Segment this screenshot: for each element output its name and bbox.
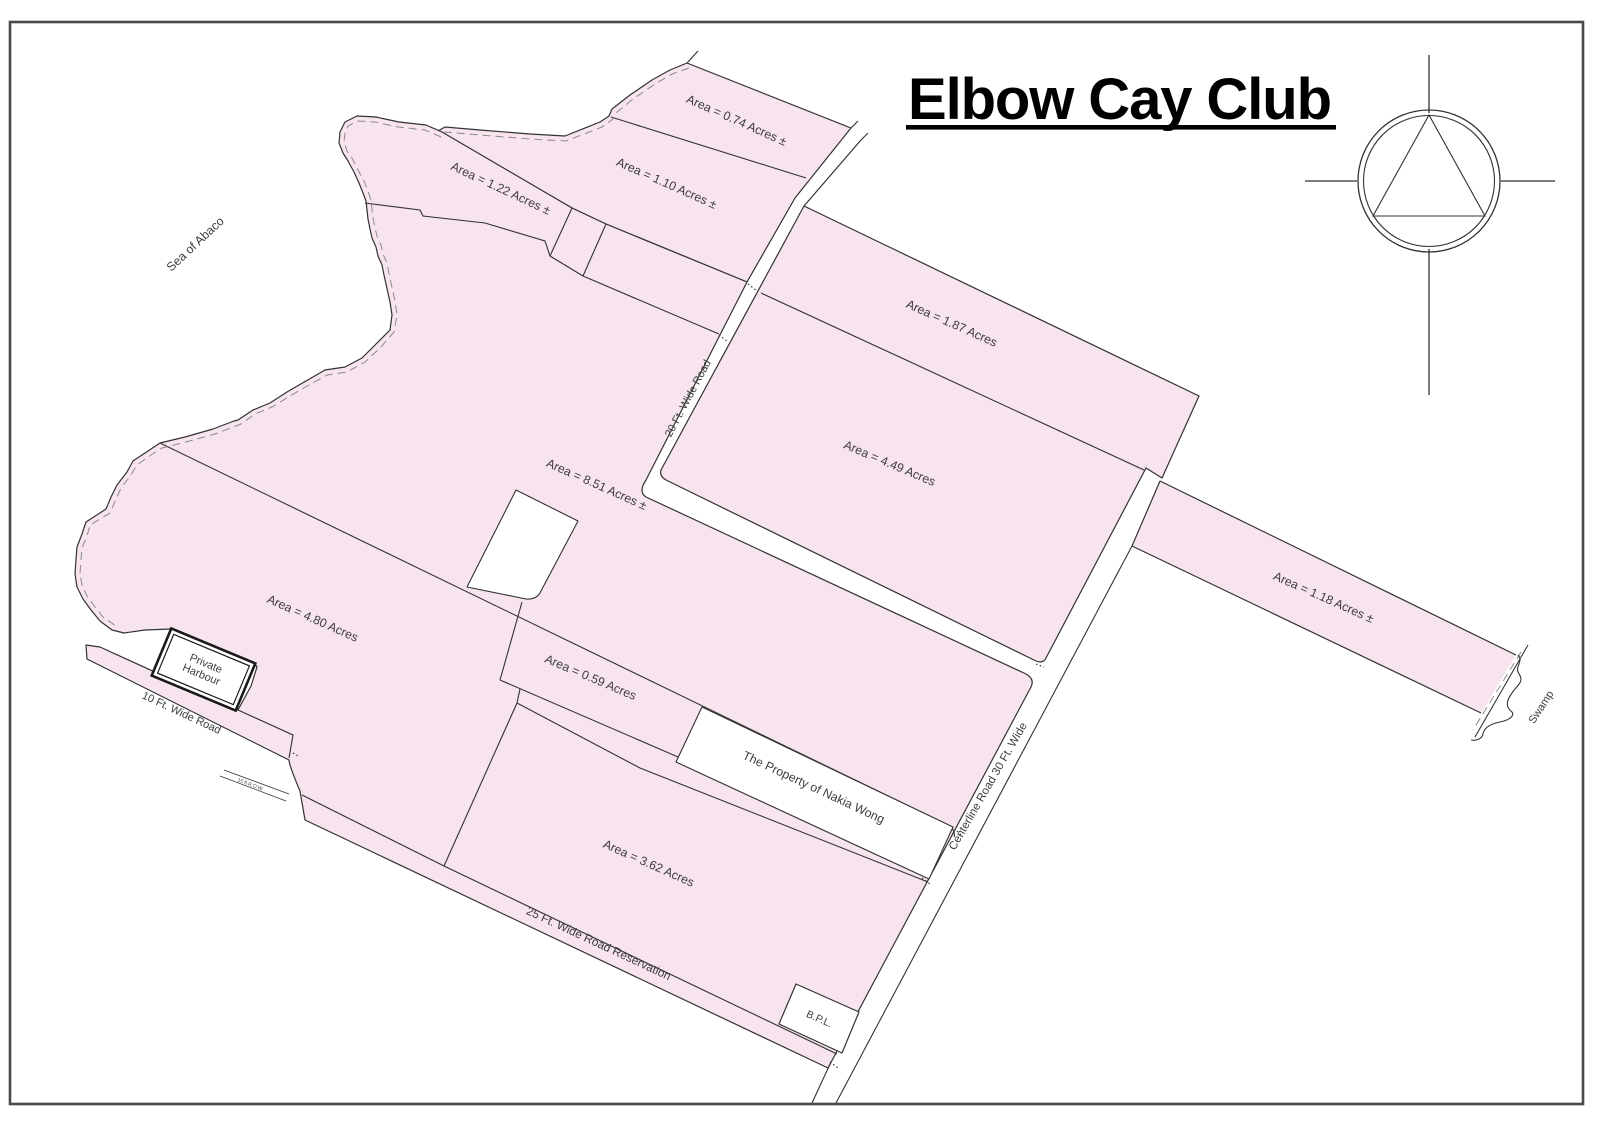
svg-text:Elbow Cay Club: Elbow Cay Club [908, 67, 1332, 132]
